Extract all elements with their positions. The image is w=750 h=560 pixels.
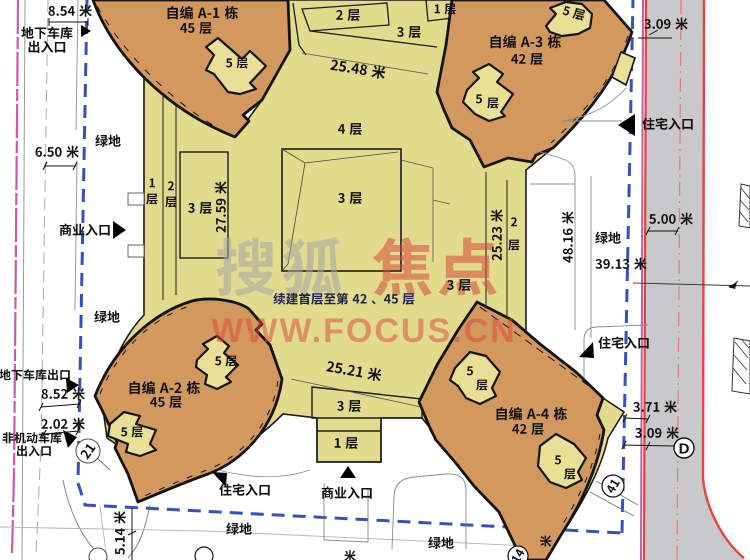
svg-text:WWW.FOCUS.CN: WWW.FOCUS.CN (211, 312, 516, 350)
svg-text:D: D (679, 441, 690, 458)
